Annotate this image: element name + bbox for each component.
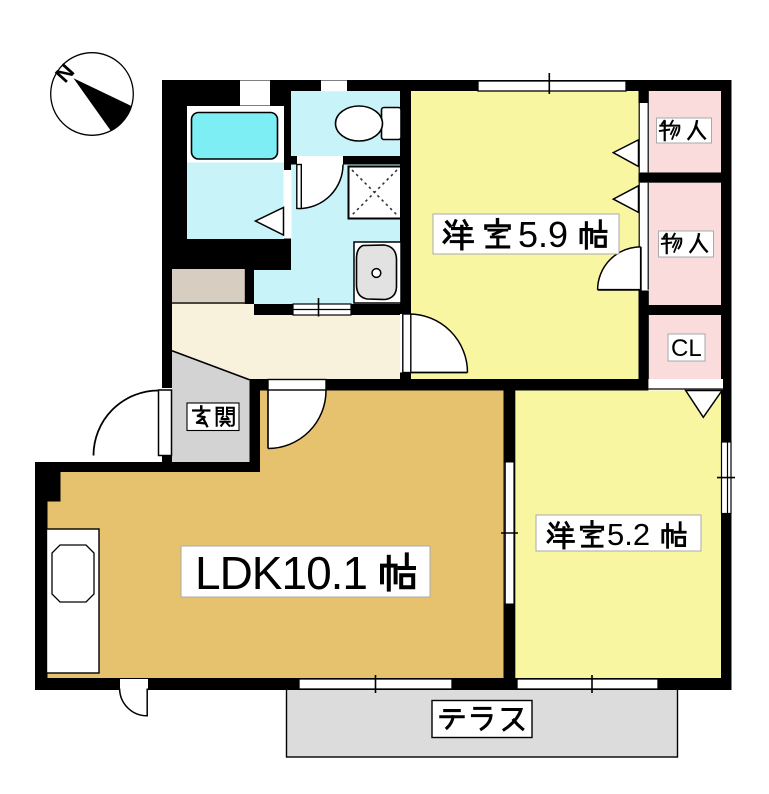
svg-text:5.2: 5.2 — [607, 517, 650, 552]
svg-text:LDK10.1: LDK10.1 — [195, 547, 367, 599]
svg-text:5.9: 5.9 — [518, 214, 568, 255]
svg-text:CL: CL — [671, 335, 702, 362]
